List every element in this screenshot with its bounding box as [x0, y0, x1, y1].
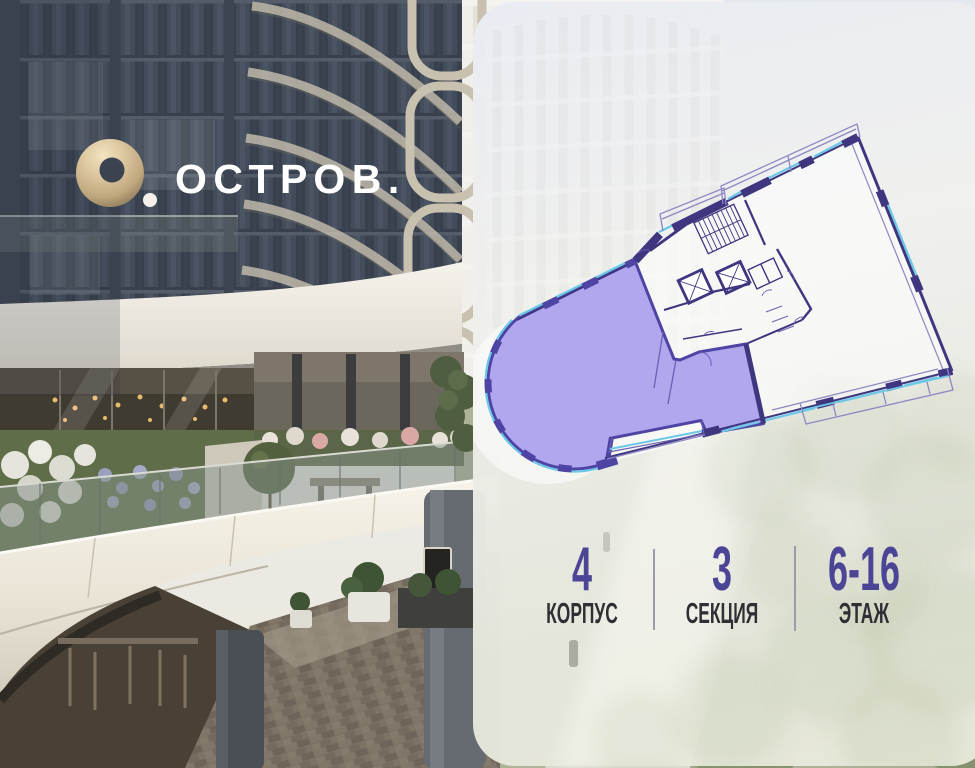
svg-text:ОСТРОВ.: ОСТРОВ.: [175, 156, 406, 202]
